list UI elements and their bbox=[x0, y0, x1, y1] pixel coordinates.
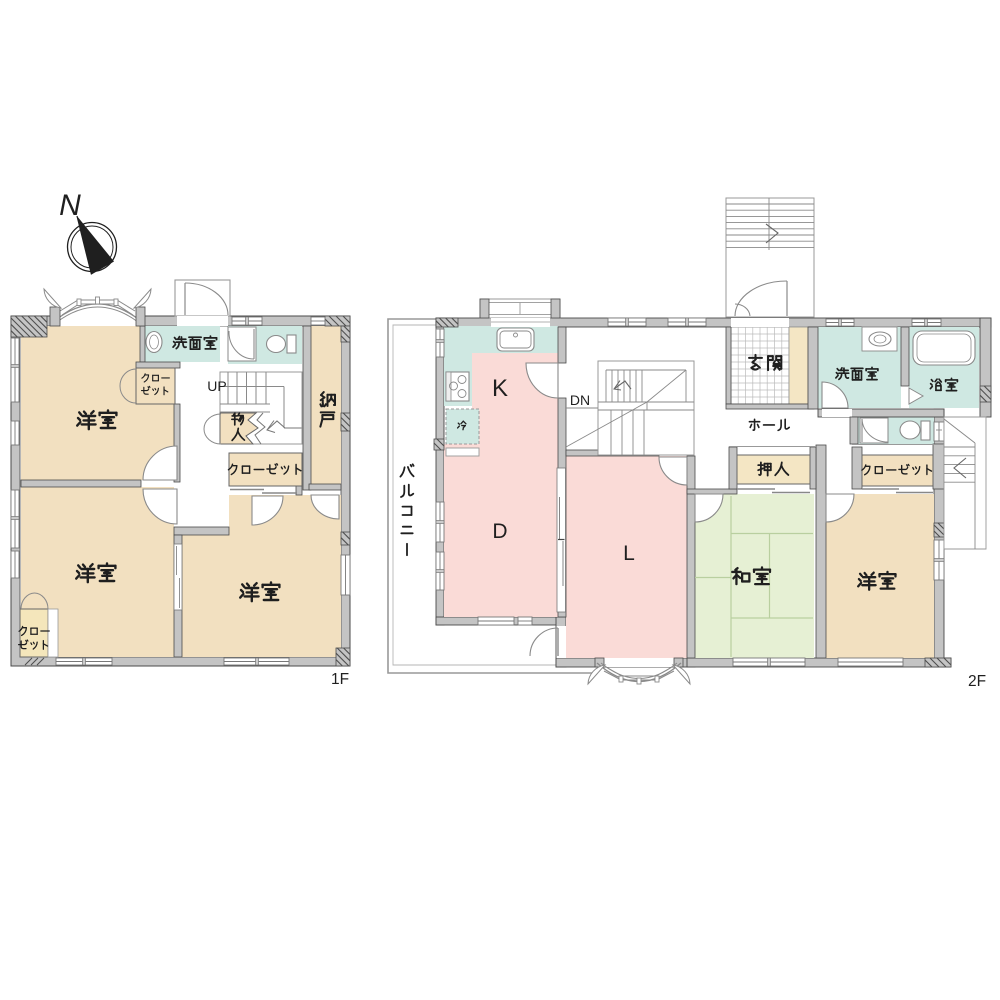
svg-text:D: D bbox=[492, 520, 507, 543]
svg-text:UP: UP bbox=[207, 378, 226, 394]
svg-text:N: N bbox=[59, 189, 81, 222]
svg-text:2F: 2F bbox=[968, 673, 986, 690]
svg-text:1F: 1F bbox=[331, 671, 349, 688]
svg-text:DN: DN bbox=[570, 392, 590, 408]
svg-text:L: L bbox=[623, 542, 635, 565]
svg-text:K: K bbox=[492, 375, 508, 402]
